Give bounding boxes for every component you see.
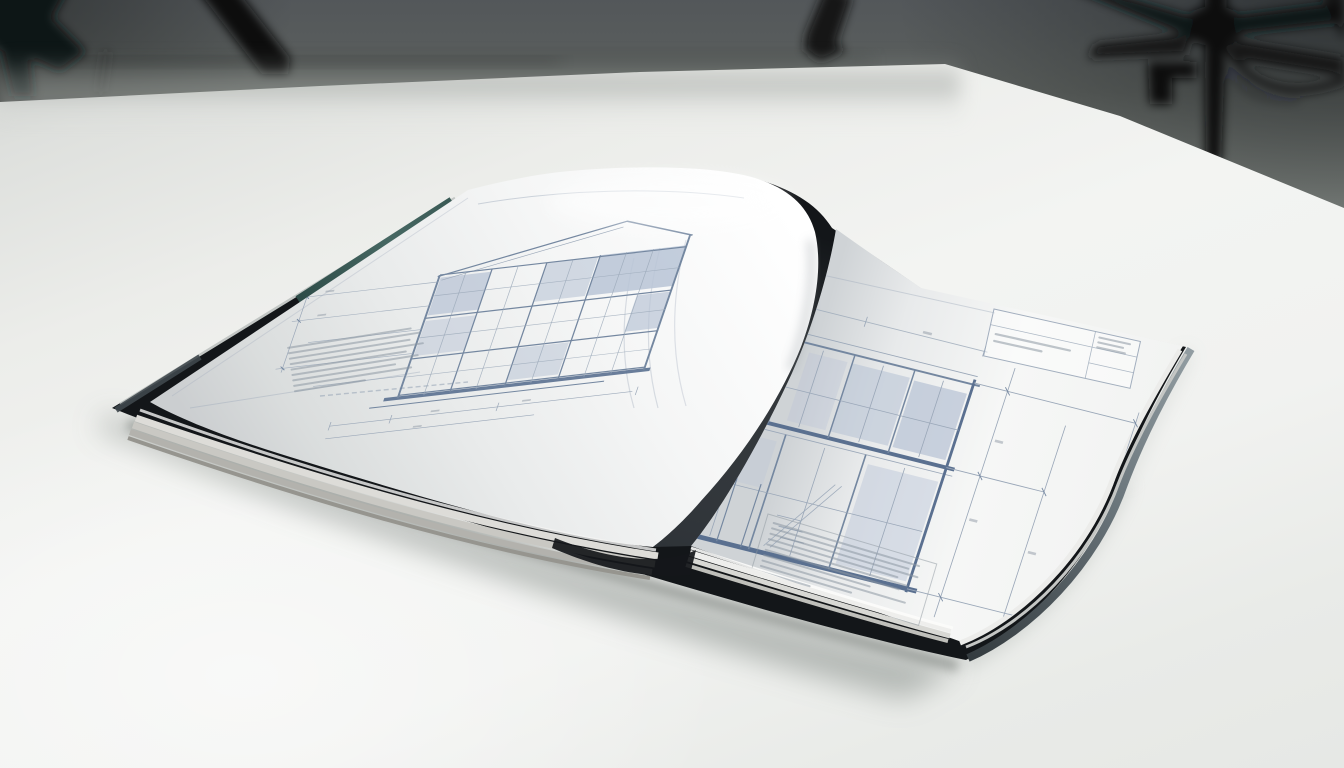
studio-photo-scene <box>0 0 1344 768</box>
table-edge-blur <box>0 56 960 122</box>
